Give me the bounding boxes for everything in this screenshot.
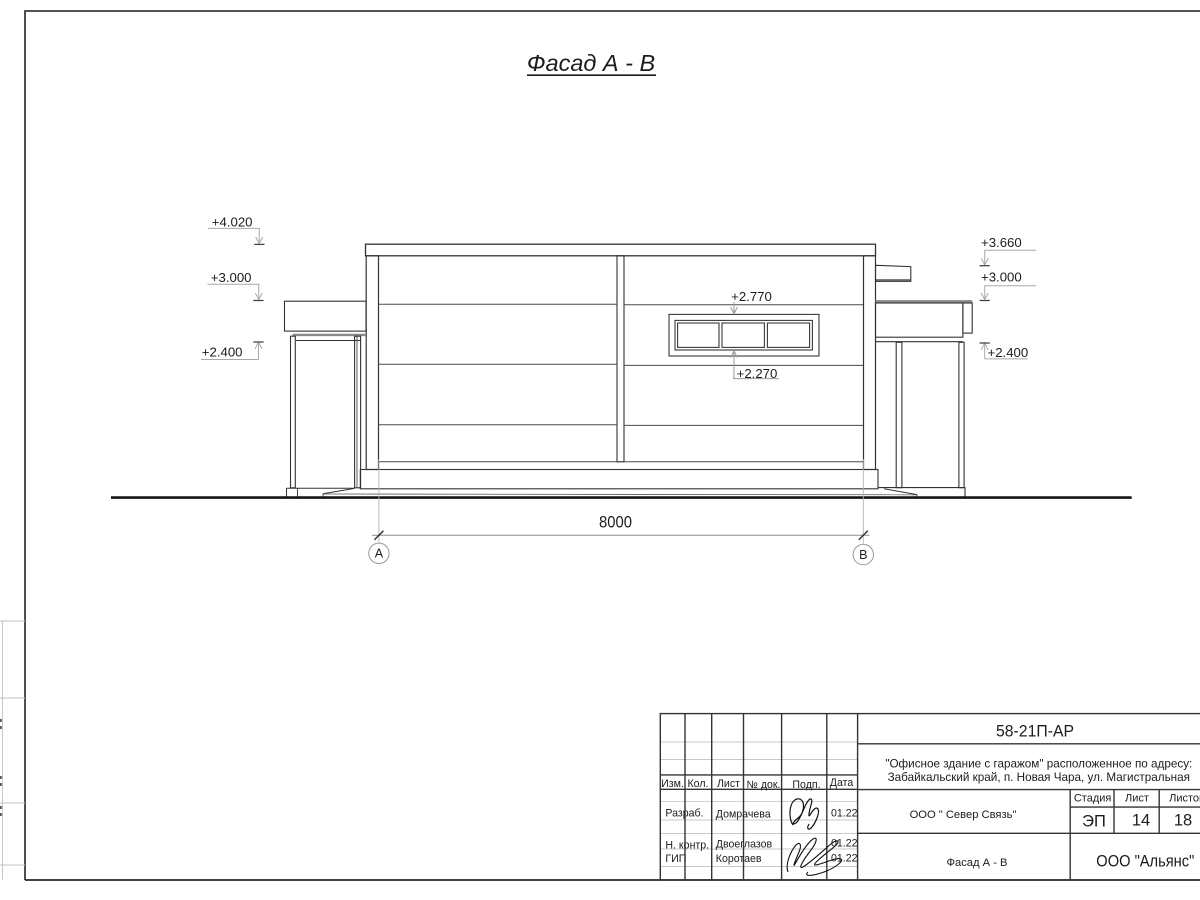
svg-text:"Офисное здание с гаражом" рас: "Офисное здание с гаражом" расположенное… xyxy=(885,757,1192,770)
svg-text:Подп.: Подп. xyxy=(792,779,820,791)
svg-text:01.22: 01.22 xyxy=(831,808,858,820)
svg-text:В: В xyxy=(859,548,867,562)
svg-text:Коротаев: Коротаев xyxy=(716,853,762,865)
svg-text:Домрачева: Домрачева xyxy=(716,809,771,821)
svg-text:А: А xyxy=(375,547,384,561)
svg-text:ООО " Север Связь": ООО " Север Связь" xyxy=(910,809,1017,821)
svg-text:Кол.: Кол. xyxy=(688,778,709,790)
svg-text:+2.400: +2.400 xyxy=(202,345,243,360)
svg-text:Разраб.: Разраб. xyxy=(665,808,703,820)
svg-text:Фасад А - В: Фасад А - В xyxy=(946,857,1007,869)
svg-text:+2.400: +2.400 xyxy=(988,345,1029,360)
svg-text:Двоеглазов: Двоеглазов xyxy=(716,839,773,851)
svg-text:+3.000: +3.000 xyxy=(981,270,1022,285)
svg-text:Стадия: Стадия xyxy=(1074,792,1112,804)
svg-text:+4.020: +4.020 xyxy=(212,214,253,229)
svg-text:Листов: Листов xyxy=(1169,792,1200,804)
svg-text:Н. контр.: Н. контр. xyxy=(665,840,709,852)
svg-text:Лист: Лист xyxy=(717,778,740,790)
svg-text:8000: 8000 xyxy=(599,513,632,531)
svg-text:Забайкальский край, п. Новая Ч: Забайкальский край, п. Новая Чара, ул. М… xyxy=(888,771,1190,784)
svg-text:Лист: Лист xyxy=(1125,792,1149,804)
svg-text:+3.000: +3.000 xyxy=(211,270,252,285)
svg-text:Дата: Дата xyxy=(830,777,854,789)
svg-text:58-21П-АР: 58-21П-АР xyxy=(996,722,1074,740)
svg-text:14: 14 xyxy=(1132,812,1150,830)
svg-text:01.22: 01.22 xyxy=(831,852,858,864)
svg-text:ЭП: ЭП xyxy=(1082,812,1106,830)
svg-text:18: 18 xyxy=(1174,812,1192,830)
svg-text:01.22: 01.22 xyxy=(831,838,858,850)
svg-text:Изм.: Изм. xyxy=(661,778,684,790)
svg-text:ГИП: ГИП xyxy=(665,853,686,865)
svg-text:ООО "Альянс": ООО "Альянс" xyxy=(1096,853,1194,871)
svg-text:№ док.: № док. xyxy=(747,779,781,791)
svg-text:Фасад А - В: Фасад А - В xyxy=(527,50,655,76)
svg-text:+2.270: +2.270 xyxy=(737,366,778,381)
svg-text:+2.770: +2.770 xyxy=(731,289,772,304)
svg-text:+3.660: +3.660 xyxy=(981,235,1022,250)
